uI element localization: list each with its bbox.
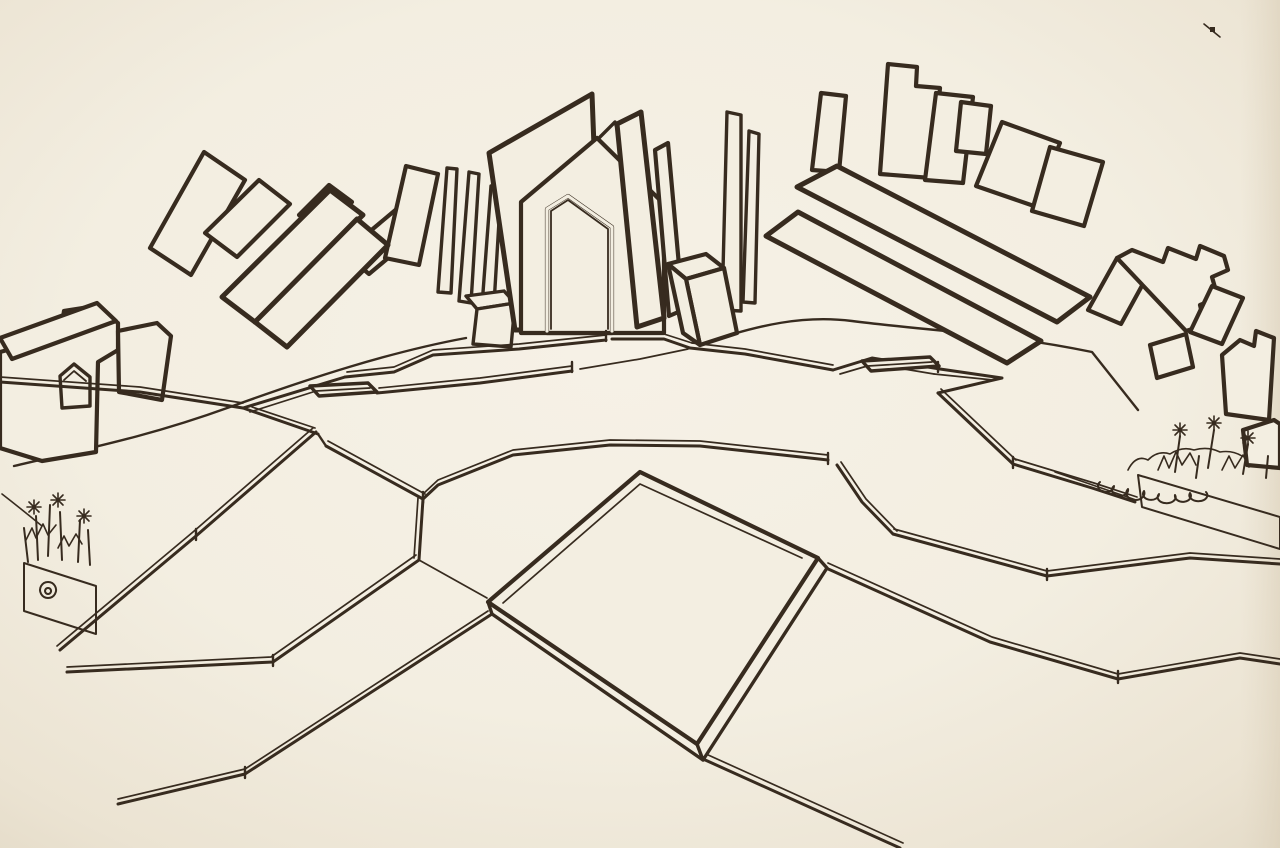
tower bbox=[956, 102, 991, 154]
shrub-star bbox=[1207, 416, 1221, 430]
sketch-page bbox=[0, 0, 1280, 848]
shrub-star bbox=[27, 500, 41, 514]
ink-drawing bbox=[0, 0, 1280, 848]
shrub-star bbox=[77, 509, 91, 523]
shrub-star bbox=[1173, 423, 1187, 437]
shrub-star bbox=[51, 493, 65, 507]
fin-base-box-front bbox=[473, 303, 515, 347]
shrub-star bbox=[1241, 431, 1255, 445]
